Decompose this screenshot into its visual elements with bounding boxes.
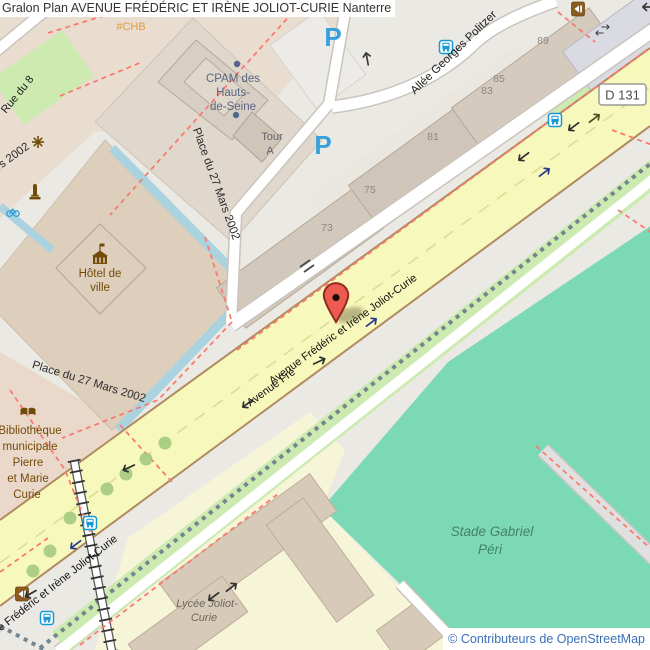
osm-attribution-link[interactable]: © Contributeurs de OpenStreetMap — [443, 628, 650, 650]
fountain-icon — [32, 136, 44, 148]
road-ref-d131: D 131 — [599, 84, 646, 105]
svg-text:Lycée Joliot-: Lycée Joliot- — [176, 598, 238, 610]
page-title: Gralon Plan AVENUE FRÉDÉRIC ET IRÈNE JOL… — [0, 0, 395, 17]
svg-text:Hôtel de: Hôtel de — [79, 268, 122, 280]
entrance-dot-icon — [234, 61, 240, 67]
parking-icon: P — [314, 130, 331, 160]
svg-text:81: 81 — [427, 131, 439, 143]
bus-stop-icon — [41, 612, 54, 625]
marker-pin-dot — [332, 294, 339, 301]
svg-text:Curie: Curie — [13, 489, 40, 501]
svg-text:89: 89 — [537, 35, 549, 47]
svg-text:75: 75 — [364, 184, 376, 196]
poi-label-chb: #CHB — [116, 21, 145, 33]
svg-text:municipale: municipale — [3, 441, 58, 453]
map-tiles: P P — [0, 0, 650, 650]
svg-text:A: A — [266, 145, 274, 157]
svg-text:ville: ville — [90, 282, 110, 294]
svg-text:CPAM des: CPAM des — [206, 73, 260, 85]
svg-text:Péri: Péri — [478, 542, 503, 557]
svg-text:Stade Gabriel: Stade Gabriel — [451, 524, 535, 539]
svg-text:73: 73 — [321, 222, 333, 234]
svg-text:D 131: D 131 — [605, 88, 640, 103]
svg-text:85: 85 — [493, 73, 505, 85]
svg-text:83: 83 — [481, 85, 493, 97]
bus-stop-icon — [84, 517, 97, 530]
svg-text:de-Seine: de-Seine — [210, 101, 256, 113]
bus-stop-icon — [549, 114, 562, 127]
svg-text:Tour: Tour — [261, 131, 283, 143]
svg-text:et Marie: et Marie — [7, 473, 49, 485]
entrance-poi-icon — [572, 2, 585, 16]
map-canvas[interactable]: P P — [0, 0, 650, 650]
svg-text:Bibliothèque: Bibliothèque — [0, 425, 62, 437]
parking-icon: P — [324, 22, 341, 52]
svg-text:Curie: Curie — [191, 612, 217, 624]
svg-text:Pierre: Pierre — [13, 457, 44, 469]
svg-text:Hauts-: Hauts- — [216, 87, 250, 99]
